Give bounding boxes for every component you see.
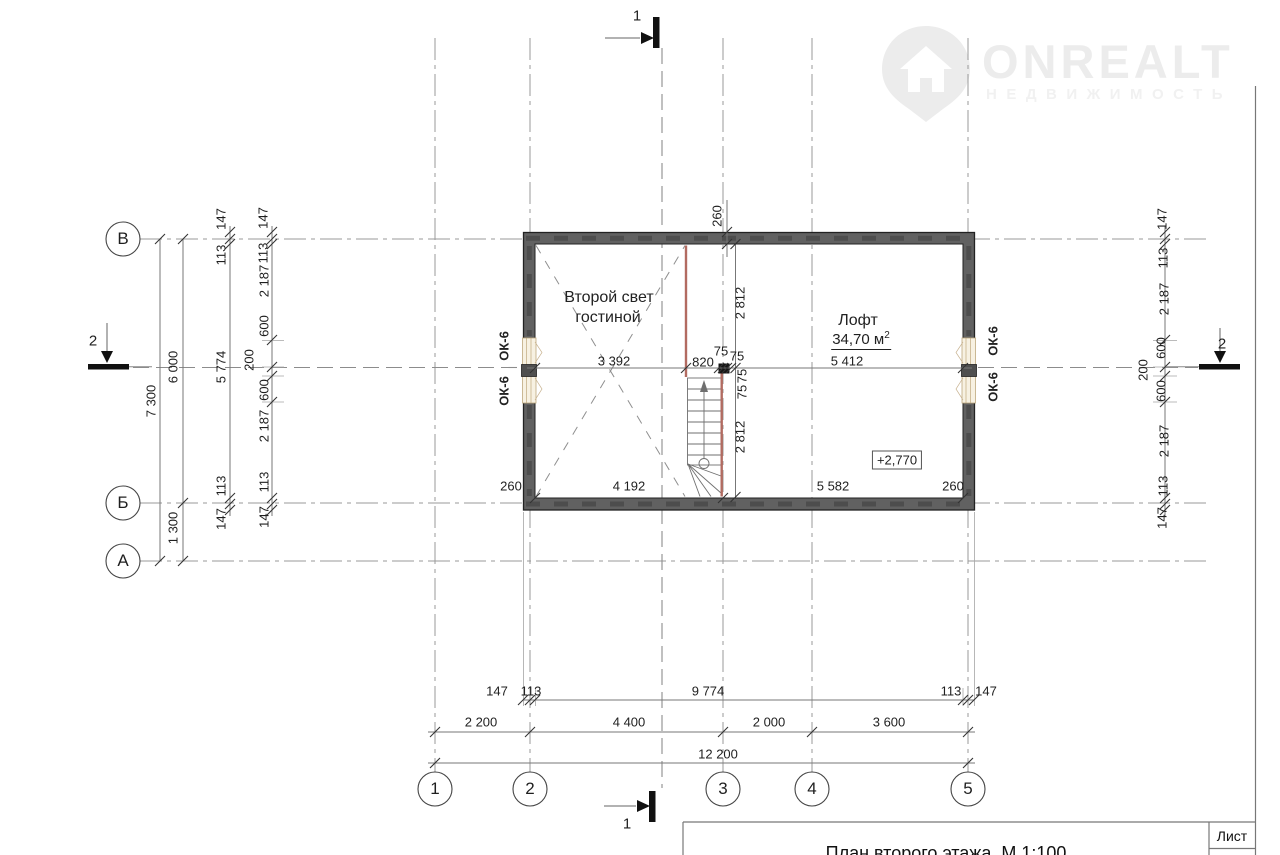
dim-b1-147r: 147 xyxy=(975,684,997,699)
dim-260-left: 260 xyxy=(500,479,522,494)
dim-2812-up: 2 812 xyxy=(733,287,748,320)
elevation-mark: +2,770 xyxy=(872,451,922,470)
section-1-bottom-label: 1 xyxy=(623,816,631,833)
dim-b2-2000: 2 000 xyxy=(753,715,786,730)
dim-b1-147l: 147 xyxy=(486,684,508,699)
room-void-label-line1: Второй свет xyxy=(564,289,653,307)
dim-5412: 5 412 xyxy=(831,354,864,369)
dim-b2-2200: 2 200 xyxy=(465,715,498,730)
dim-left4-113b: 113 xyxy=(257,472,272,493)
dim-75-d: 75 xyxy=(735,385,750,399)
axis-col-1: 1 xyxy=(430,779,439,799)
room-loft-area-exp: 2 xyxy=(884,330,890,341)
dim-75-a: 75 xyxy=(714,344,728,359)
axis-row-a: А xyxy=(117,551,128,571)
dim-b2-4400: 4 400 xyxy=(613,715,646,730)
watermark-brand: ONREALT xyxy=(982,34,1234,89)
dim-3392: 3 392 xyxy=(598,354,631,369)
sheet-label: Лист xyxy=(1217,828,1247,844)
dim-left-7300: 7 300 xyxy=(144,385,159,418)
window-label-right-bottom: ОК-6 xyxy=(986,372,1001,402)
dim-left4-200: 200 xyxy=(242,349,257,371)
dim-820: 820 xyxy=(692,355,714,370)
dim-left4-2187t: 2 187 xyxy=(257,265,272,298)
watermark: ONREALT НЕДВИЖИМОСТЬ xyxy=(860,14,1260,124)
dim-b2-3600: 3 600 xyxy=(873,715,906,730)
dim-left4-147b: 147 xyxy=(257,506,272,528)
room-void-label-line2: гостиной xyxy=(575,309,640,327)
dim-5582: 5 582 xyxy=(817,479,850,494)
dim-right-200: 200 xyxy=(1136,359,1151,381)
dim-left3-147b: 147 xyxy=(214,508,229,530)
watermark-subtitle: НЕДВИЖИМОСТЬ xyxy=(986,86,1232,103)
dim-right-600b: 600 xyxy=(1154,380,1169,402)
dim-left4-113t: 113 xyxy=(256,243,271,264)
dim-left-1300: 1 300 xyxy=(166,512,181,545)
dim-b3-12200: 12 200 xyxy=(698,747,738,762)
dim-left4-600b: 600 xyxy=(257,379,272,401)
dim-b1-113l: 113 xyxy=(521,684,542,699)
section-2-right-label: 2 xyxy=(1218,336,1226,353)
dim-4192: 4 192 xyxy=(613,479,646,494)
dim-right-600t: 600 xyxy=(1154,337,1169,359)
room-loft-label: Лофт xyxy=(838,312,878,330)
dim-left4-147t: 147 xyxy=(256,207,271,229)
dim-wall-260-top: 260 xyxy=(710,205,725,227)
dim-left3-5774: 5 774 xyxy=(214,351,229,384)
house-pin-icon xyxy=(874,22,978,126)
dim-b1-113r: 113 xyxy=(941,684,962,699)
window-label-left-bottom: ОК-6 xyxy=(497,376,512,406)
axis-row-v: В xyxy=(117,229,128,249)
dim-b1-9774: 9 774 xyxy=(692,684,725,699)
dim-right-2187b: 2 187 xyxy=(1157,425,1172,458)
dim-right-147t: 147 xyxy=(1155,208,1170,230)
section-2-left-label: 2 xyxy=(89,333,97,350)
window-label-right-top: ОК-6 xyxy=(986,326,1001,356)
floor-plan-sheet: ONREALT НЕДВИЖИМОСТЬ xyxy=(0,0,1280,855)
dim-2812-down: 2 812 xyxy=(733,421,748,454)
axis-col-5: 5 xyxy=(963,779,972,799)
dim-75-b: 75 xyxy=(730,349,744,364)
dim-left3-147t: 147 xyxy=(214,208,229,230)
drawing-title: План второго этажа. М 1:100 xyxy=(826,843,1067,855)
window-label-left-top: ОК-6 xyxy=(497,331,512,361)
axis-col-4: 4 xyxy=(807,779,816,799)
room-loft-area-value: 34,70 м xyxy=(832,331,884,348)
axis-row-b: Б xyxy=(117,493,128,513)
dim-left4-600t: 600 xyxy=(257,315,272,337)
dim-left3-113t: 113 xyxy=(214,245,229,266)
dim-left-6000: 6 000 xyxy=(166,351,181,384)
dim-260-right: 260 xyxy=(942,479,964,494)
axis-col-3: 3 xyxy=(718,779,727,799)
dim-right-113t: 113 xyxy=(1156,248,1171,269)
dim-left3-113b: 113 xyxy=(214,476,229,497)
room-loft-area: 34,70 м2 xyxy=(831,330,891,350)
dim-75-c: 75 xyxy=(735,369,750,383)
section-1-top-label: 1 xyxy=(633,8,641,25)
dim-left4-2187b: 2 187 xyxy=(257,410,272,443)
dim-right-2187t: 2 187 xyxy=(1157,283,1172,316)
dim-right-113b: 113 xyxy=(1156,476,1171,497)
axis-col-2: 2 xyxy=(525,779,534,799)
dim-right-147b: 147 xyxy=(1155,507,1170,529)
